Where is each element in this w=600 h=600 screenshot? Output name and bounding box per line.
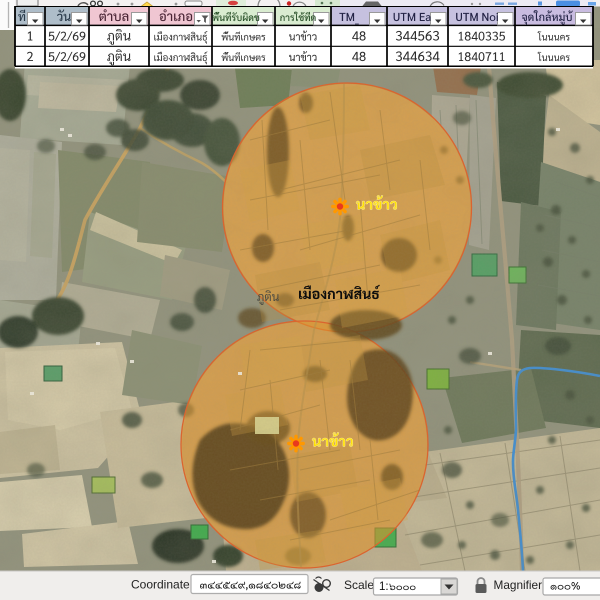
svg-text:Magnifier: Magnifier — [494, 578, 543, 592]
svg-text:1:: 1: — [379, 581, 389, 593]
svg-text:Scale: Scale — [344, 578, 374, 592]
svg-text:Coordinate: Coordinate — [131, 578, 190, 592]
